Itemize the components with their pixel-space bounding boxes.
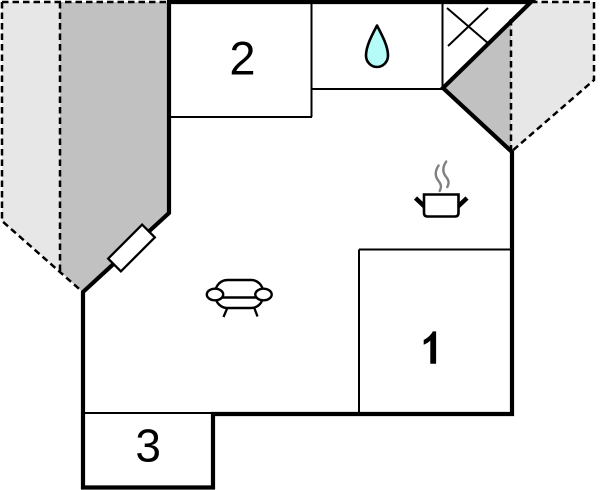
svg-text:2: 2 (229, 32, 255, 85)
svg-text:3: 3 (135, 420, 161, 472)
